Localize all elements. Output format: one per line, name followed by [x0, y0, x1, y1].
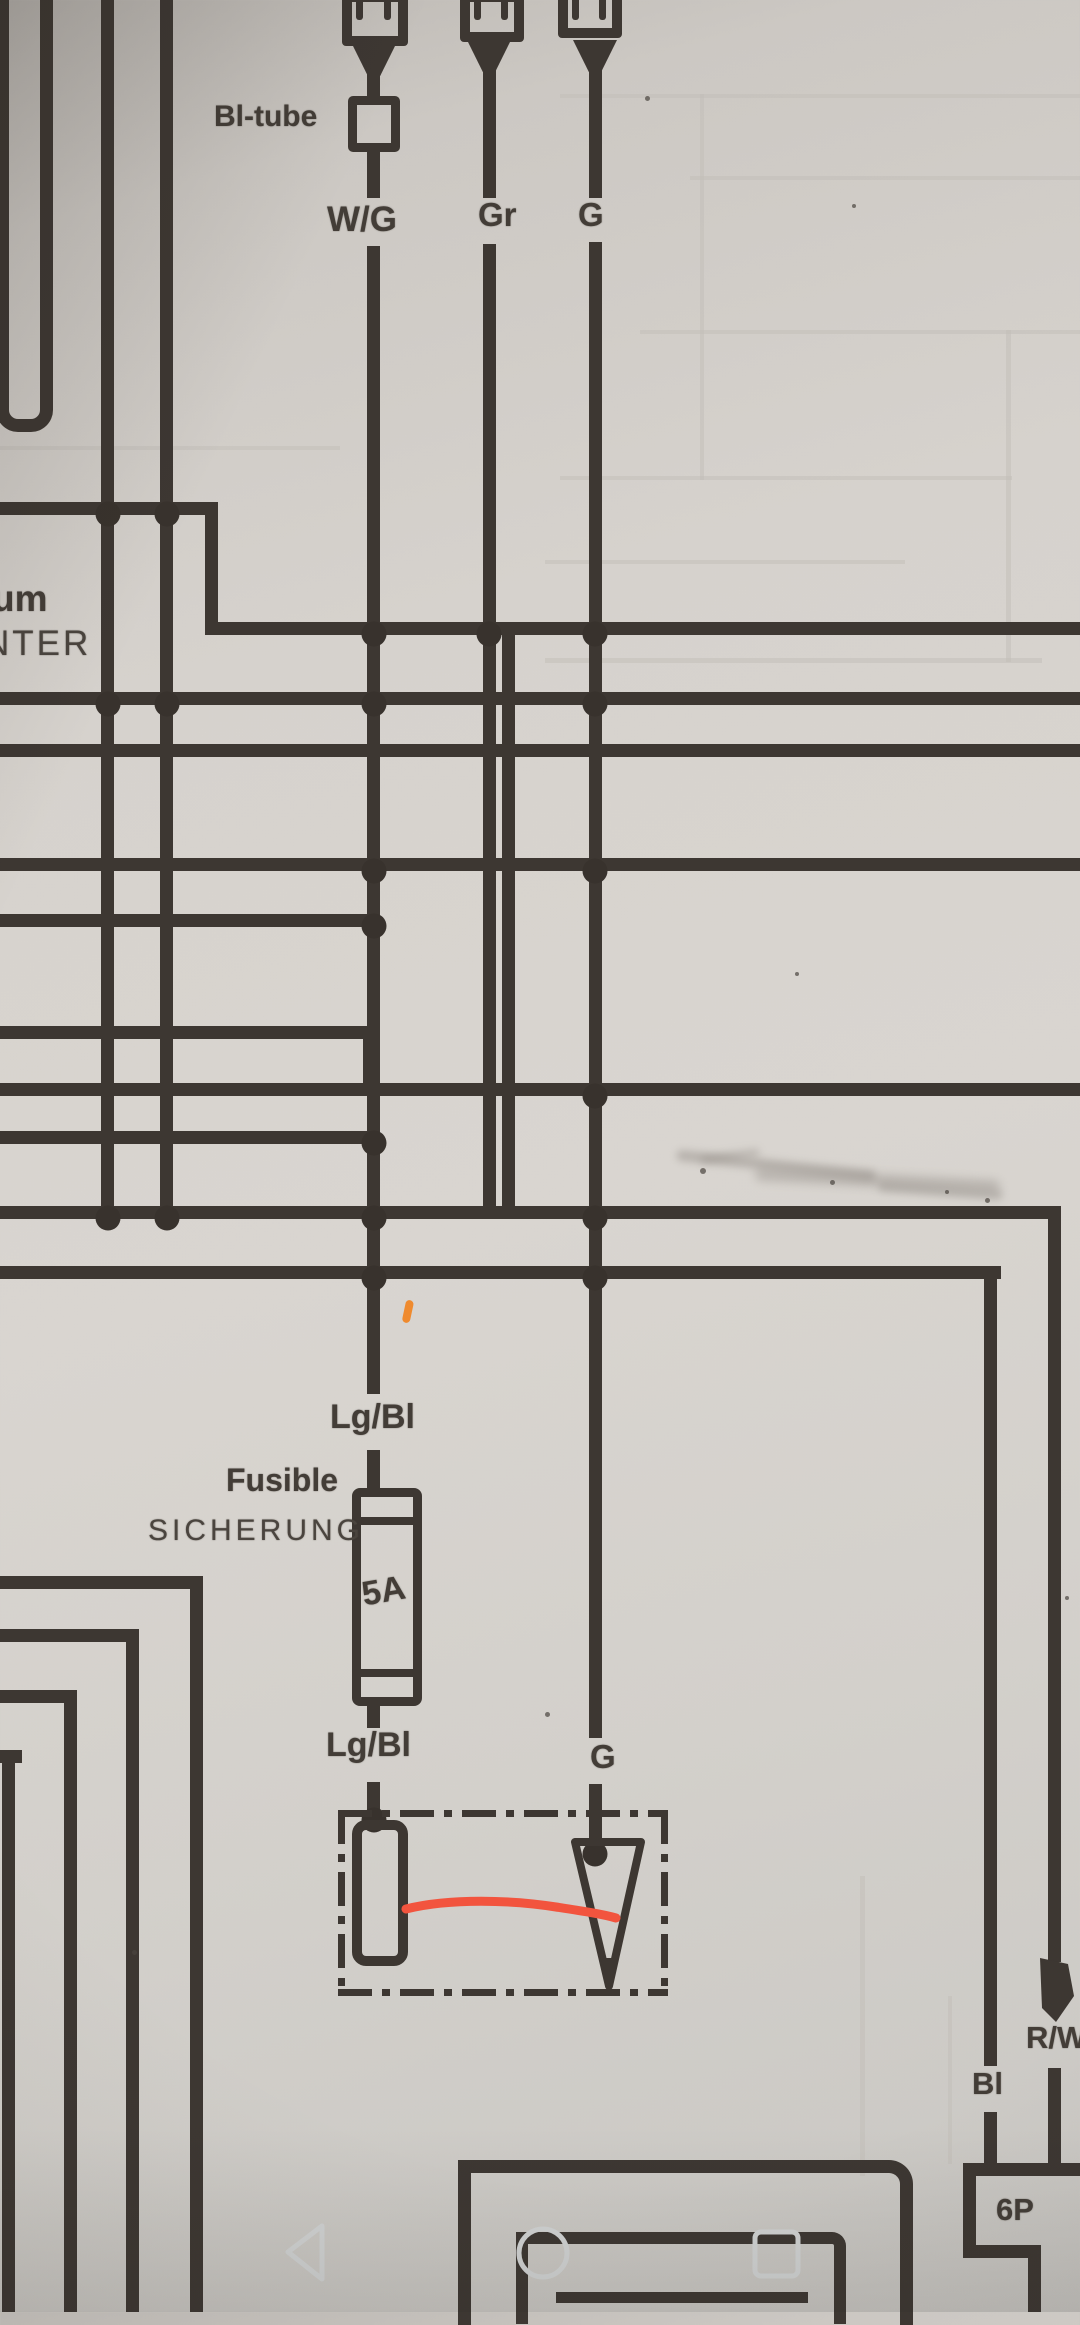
paper-speck: [700, 1168, 706, 1174]
label-wire-g-mid: G: [590, 1738, 616, 1776]
connector-pin: [356, 0, 363, 20]
junction-dot: [155, 502, 180, 527]
ghost-line: [640, 330, 1080, 334]
label-partial-um: um: [0, 578, 48, 620]
connector-pin: [501, 0, 508, 20]
junction-dot: [362, 1206, 387, 1231]
step-vertical: [205, 502, 218, 635]
paper-speck: [945, 1190, 949, 1194]
junction-dot: [362, 622, 387, 647]
paper-speck: [985, 1198, 990, 1203]
orange-marker-tick: [402, 1299, 415, 1323]
ghost-line: [860, 1876, 865, 2176]
paper-speck: [132, 1950, 137, 1955]
dash-dot-edge: [338, 1810, 345, 1996]
bracket-1-h: [0, 1576, 203, 1589]
junction-dot: [362, 859, 387, 884]
label-connector-6p: 6P: [996, 2192, 1034, 2228]
junction-dot: [583, 1266, 608, 1291]
ghost-line: [560, 94, 1080, 98]
paper-speck: [830, 1180, 835, 1185]
label-wire-rw: R/W: [1026, 2020, 1080, 2056]
ghost-line: [948, 1996, 952, 2164]
junction-dot: [477, 622, 502, 647]
rw-terminal-symbol: [1040, 1958, 1074, 2022]
connector-plug-1: [342, 0, 408, 46]
dash-dot-edge: [661, 1810, 668, 1996]
paper-speck: [545, 1712, 550, 1717]
red-marker-line: [406, 1901, 616, 1918]
6p-box-step-v: [1028, 2245, 1041, 2312]
ghost-line: [545, 658, 1042, 663]
junction-dot: [583, 622, 608, 647]
connector-plug-2: [460, 0, 524, 42]
label-fuse-french: Fusible: [226, 1462, 338, 1499]
label-bl-tube: Bl-tube: [214, 100, 317, 134]
junction-dot: [96, 692, 121, 717]
junction-dot: [583, 1206, 608, 1231]
connector-neck: [352, 44, 396, 76]
connector-plug-3: [558, 0, 622, 38]
junction-dot: [362, 692, 387, 717]
junction-dot: [583, 692, 608, 717]
bus-h-628: [205, 622, 1080, 635]
connector-pin: [384, 0, 391, 20]
bus-h-1272: [0, 1266, 1001, 1279]
junction-dot: [96, 1206, 121, 1231]
branch-vertical: [502, 622, 515, 1219]
bottom-connector-box-inner: [516, 2232, 846, 2324]
junction-dot: [96, 502, 121, 527]
wiring-diagram-photo: Bl-tube W/G Gr G um NTER Lg/Bl Fusible S…: [0, 0, 1080, 2312]
rw-wire: [1048, 1206, 1061, 1962]
bl-wire: [984, 1266, 997, 2066]
label-partial-nter: NTER: [0, 624, 91, 664]
junction-dot: [362, 1266, 387, 1291]
bracket-3-v: [64, 1690, 77, 2312]
label-wire-bl: Bl: [972, 2066, 1003, 2102]
label-fuse-rating: 5A: [359, 1569, 409, 1615]
wg-wire: [367, 148, 380, 198]
bus-h-1137: [0, 1131, 380, 1144]
paper-speck: [1065, 1596, 1069, 1600]
label-fuse-german: SICHERUNG: [148, 1514, 364, 1548]
ghost-line: [560, 476, 1012, 480]
connector-neck: [573, 40, 617, 72]
label-wire-lgbl-1: Lg/Bl: [330, 1398, 415, 1437]
junction-dot: [362, 914, 387, 939]
paper-speck: [852, 204, 856, 208]
connector-neck: [467, 40, 511, 72]
6p-box-top: [963, 2163, 1080, 2176]
6p-box-left: [963, 2163, 976, 2258]
bl-tube-component: [348, 96, 400, 152]
bus-h-1090: [0, 1083, 1080, 1096]
ghost-line: [690, 176, 1080, 180]
nav-back-icon[interactable]: [288, 2226, 322, 2279]
label-wire-gr: Gr: [478, 196, 517, 234]
junction-dot: [583, 1842, 608, 1867]
g-wire: [589, 242, 602, 1738]
fuse-cap-line: [361, 1517, 413, 1525]
gr-wire: [483, 244, 496, 1219]
label-wire-wg: W/G: [327, 200, 397, 240]
resistor-component: [352, 1820, 408, 1966]
paper-speck: [795, 972, 799, 976]
bus-h-750: [0, 744, 1080, 757]
bracket-2-h: [0, 1629, 139, 1642]
ghost-line: [700, 94, 704, 480]
bus-h-920: [0, 914, 380, 927]
connector-pin: [599, 0, 606, 20]
bus-h-865: [0, 858, 1080, 871]
diode-triangle: [575, 1842, 641, 1986]
fuse-cap-line: [361, 1669, 413, 1677]
junction-dot: [362, 1131, 387, 1156]
bracket-2-v: [126, 1629, 139, 2312]
diode-triangle-tip: [600, 1958, 618, 1984]
junction-dot: [155, 692, 180, 717]
rw-wire: [1048, 2068, 1061, 2172]
junction-dot: [583, 859, 608, 884]
dash-dot-edge: [338, 1810, 668, 1817]
wg-wire: [367, 1450, 380, 1492]
label-wire-g: G: [578, 196, 604, 234]
connector-pin: [572, 0, 579, 20]
label-wire-lgbl-2: Lg/Bl: [326, 1726, 411, 1765]
paper-speck: [645, 96, 650, 101]
ghost-line: [1006, 330, 1011, 662]
bracket-1-v: [190, 1576, 203, 2312]
left-component-box: [0, 0, 53, 432]
junction-dot: [583, 1084, 608, 1109]
junction-dot: [155, 1206, 180, 1231]
dash-dot-edge: [338, 1989, 668, 1996]
connector-pin: [474, 0, 481, 20]
bracket-4-v: [2, 1750, 15, 2312]
bus-h-1032: [0, 1026, 376, 1039]
